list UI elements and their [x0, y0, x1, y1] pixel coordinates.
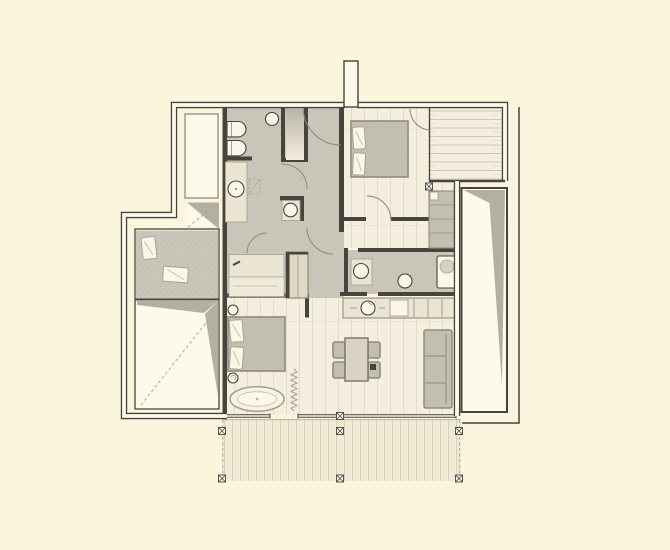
wall-basin-top — [280, 196, 304, 201]
wall-basin-side — [300, 200, 304, 221]
wall-bathroom2-bottom-a — [340, 292, 367, 296]
column-marker-x — [337, 413, 344, 420]
kitchen-counter — [343, 298, 456, 318]
wall-bathroom2-left — [344, 248, 348, 294]
bathtub-drain — [256, 398, 259, 401]
shower-cell — [286, 109, 304, 160]
floor-plan-canvas — [0, 0, 670, 550]
washbasin-icon-3 — [354, 264, 369, 279]
column-marker-x — [456, 475, 463, 482]
floor-plan-drawing — [0, 0, 670, 550]
chimney-duct — [344, 61, 358, 107]
stool-icon — [228, 373, 238, 383]
bidet-icon — [227, 141, 246, 156]
dressing-area — [229, 252, 308, 298]
chair-icon — [333, 342, 345, 358]
desk-icon — [229, 255, 284, 278]
wall-shower-left — [281, 107, 285, 162]
wall-corridor-stub — [344, 217, 366, 221]
wall-toilet-stub — [225, 157, 252, 161]
wall-bathroom2-top — [358, 248, 456, 252]
round-basin-icon-2 — [398, 274, 412, 288]
bathtub-basin — [440, 260, 454, 273]
stool-icon — [228, 305, 238, 315]
desk-lower-shelf — [229, 277, 284, 297]
column-marker-x — [219, 475, 226, 482]
column-marker-x — [426, 183, 433, 190]
column-marker-x — [219, 428, 226, 435]
cooktop-icon — [390, 300, 408, 316]
washbasin-icon-2 — [284, 203, 298, 217]
wall-hall-bedroom2 — [339, 107, 344, 232]
kitchen-sink-icon — [361, 301, 375, 315]
chair-icon — [368, 342, 380, 358]
balcony-planks — [429, 108, 505, 181]
closet-top-left — [185, 114, 218, 198]
column-marker-x — [456, 428, 463, 435]
toilet-icon — [227, 122, 246, 137]
wall-bathroom2-bottom-b — [378, 292, 456, 296]
chair-icon — [333, 362, 345, 378]
wardrobe-shelf — [430, 192, 438, 200]
wall-shower-right — [304, 107, 308, 162]
wall-bedroom2-bottom — [391, 217, 429, 221]
dining-table-icon — [345, 338, 368, 381]
column-marker-x — [337, 475, 344, 482]
right-void-block — [462, 188, 508, 412]
round-basin-icon — [266, 113, 279, 126]
column-marker-x — [337, 428, 344, 435]
wall-left-wing-separator — [223, 107, 228, 417]
chair-accent-object — [370, 364, 376, 370]
